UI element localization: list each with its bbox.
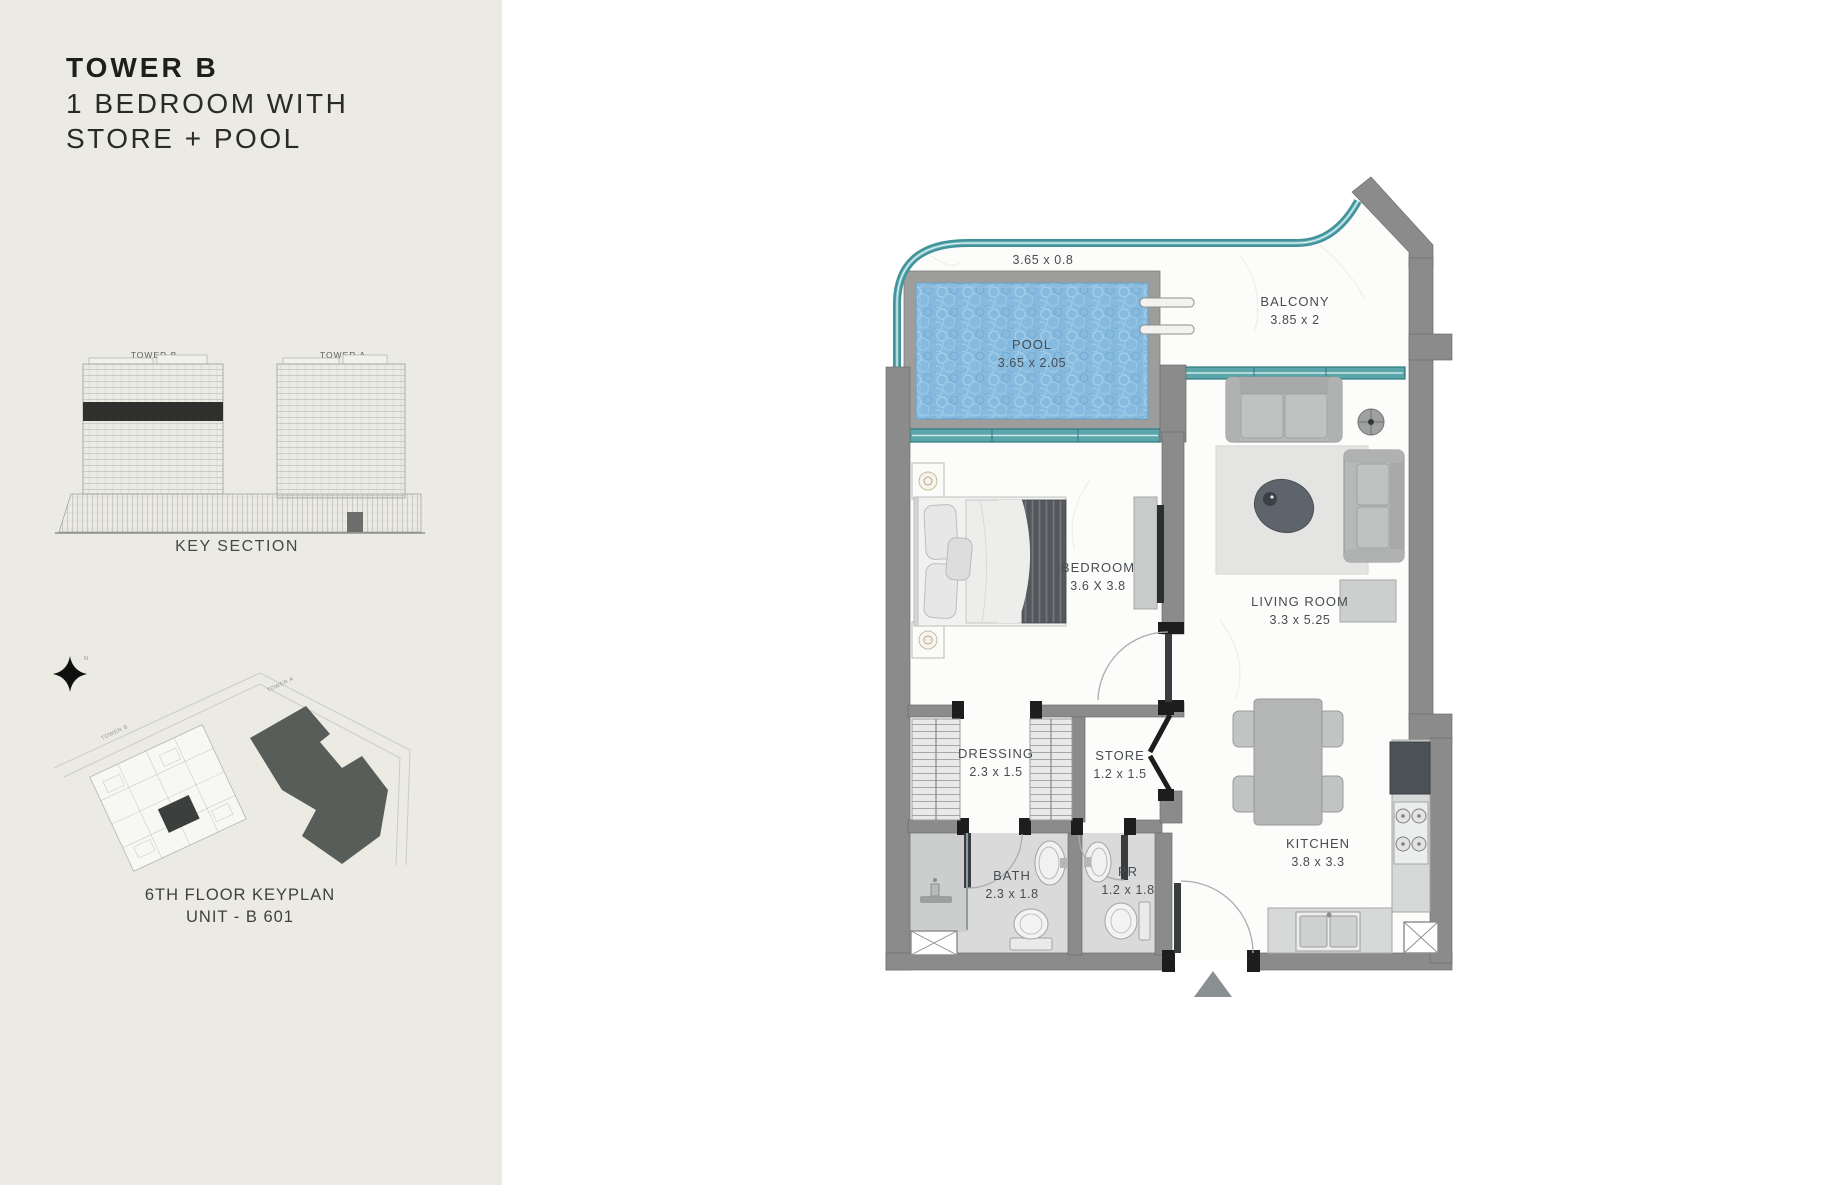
floor-plan-area: 3.65 x 0.8 POOL 3.65 x 2.05 BALCONY 3.85…	[700, 130, 1500, 1030]
cooktop-icon	[1394, 802, 1428, 864]
dining-table	[1254, 699, 1322, 825]
keyplan-tower-a: TOWER A	[250, 676, 388, 864]
north-arrow-icon: N	[53, 656, 88, 692]
podium-elevation	[59, 494, 421, 532]
tv-console	[1134, 497, 1157, 609]
dining-chair	[1233, 776, 1257, 812]
store-dims: 1.2 x 1.5	[1093, 767, 1146, 781]
kitchen-dims: 3.8 x 3.3	[1291, 855, 1344, 869]
pr-right-wall	[1155, 833, 1172, 955]
pr-label: PR	[1118, 864, 1138, 879]
pool-dims: 3.65 x 2.05	[998, 356, 1066, 370]
tower-a-elevation	[277, 355, 405, 498]
deck-dim-label: 3.65 x 0.8	[1013, 253, 1074, 267]
keyplan-caption-line1: 6TH FLOOR KEYPLAN	[0, 884, 480, 906]
bath-pr-divider	[1068, 833, 1082, 955]
balcony-dims: 3.85 x 2	[1270, 313, 1319, 327]
bed	[914, 497, 1066, 626]
page-title: TOWER B 1 BEDROOM WITH STORE + POOL	[66, 50, 348, 156]
dining-chair	[1233, 711, 1257, 747]
keyplan-caption-line2: UNIT - B 601	[0, 906, 480, 928]
bath-dims: 2.3 x 1.8	[985, 887, 1038, 901]
bath-label: BATH	[993, 868, 1031, 883]
accent-pillow	[945, 537, 973, 581]
fridge	[1390, 742, 1430, 794]
dressing-store-top-wall	[1032, 705, 1162, 717]
living-room-label: LIVING ROOM	[1251, 594, 1349, 609]
sofa-top	[1226, 377, 1342, 442]
dressing-store-divider	[1072, 717, 1085, 822]
pr-toilet-icon	[1105, 902, 1150, 940]
bedroom-living-wall-top	[1160, 365, 1186, 442]
right-pilaster-bottom	[1409, 714, 1452, 740]
bedroom-label: BEDROOM	[1061, 560, 1135, 575]
shower-floor	[910, 833, 967, 932]
dining-chair	[1319, 711, 1343, 747]
floor-lamp-icon	[1358, 409, 1384, 435]
pool-label: POOL	[1012, 337, 1052, 352]
tv-icon	[1157, 505, 1164, 603]
north-label: N	[84, 656, 88, 662]
store-label: STORE	[1095, 748, 1145, 763]
title-line2: 1 BEDROOM WITH	[66, 86, 348, 121]
keyplan-drawing: N TOWER B TOWER A	[40, 640, 420, 875]
entrance-arrow-icon	[1194, 971, 1232, 997]
balcony-label: BALCONY	[1260, 294, 1329, 309]
dressing-dims: 2.3 x 1.5	[969, 765, 1022, 779]
kitchen-label: KITCHEN	[1286, 836, 1350, 851]
sofa-right	[1344, 450, 1404, 562]
living-room-dims: 3.3 x 5.25	[1270, 613, 1331, 627]
keyplan-tower-b: TOWER B	[90, 724, 246, 871]
keyplan-caption: 6TH FLOOR KEYPLAN UNIT - B 601	[0, 884, 480, 928]
title-tower: TOWER B	[66, 50, 348, 86]
right-pilaster-top	[1409, 334, 1452, 360]
bedroom-dims: 3.6 X 3.8	[1070, 579, 1125, 593]
bedroom-living-wall	[1162, 432, 1184, 634]
title-line3: STORE + POOL	[66, 121, 348, 156]
bottom-wall-right	[1252, 953, 1452, 970]
dining-chair	[1319, 776, 1343, 812]
left-wall	[886, 367, 910, 970]
floorplan-page: TOWER B 1 BEDROOM WITH STORE + POOL TOWE…	[0, 0, 1836, 1185]
kitchen-sink-icon	[1296, 912, 1360, 951]
sidebar: TOWER B 1 BEDROOM WITH STORE + POOL TOWE…	[0, 0, 502, 1185]
highlighted-floor-band	[83, 402, 223, 421]
keyplan-tower-b-label: TOWER B	[100, 724, 129, 742]
key-section-caption: KEY SECTION	[0, 538, 474, 556]
floor-plan: 3.65 x 0.8 POOL 3.65 x 2.05 BALCONY 3.85…	[700, 130, 1500, 1030]
tower-b-elevation	[83, 355, 223, 494]
bedroom-pool-slider	[910, 429, 1160, 442]
key-section-drawing: TOWER B TOWER A	[55, 346, 425, 538]
pr-dims: 1.2 x 1.8	[1101, 883, 1154, 897]
dressing-label: DRESSING	[958, 746, 1034, 761]
right-wall-upper	[1409, 258, 1433, 720]
